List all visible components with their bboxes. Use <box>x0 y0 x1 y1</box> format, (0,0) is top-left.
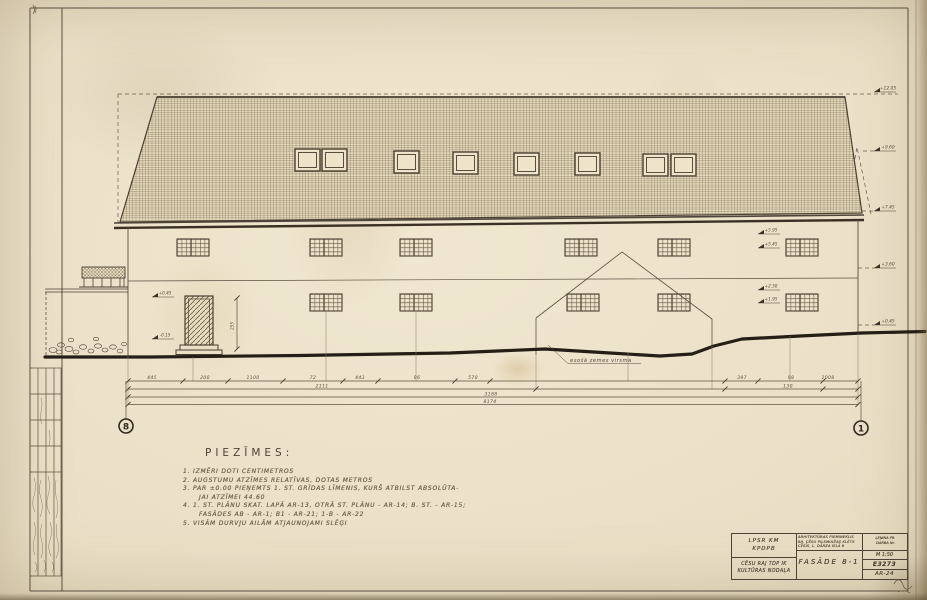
svg-text:397: 397 <box>737 375 747 381</box>
svg-text:+5.45: +5.45 <box>765 242 778 247</box>
level-flags-left-wall: +0.45 -0.15 <box>152 291 174 340</box>
svg-text:+0.45: +0.45 <box>881 319 895 325</box>
drawing-sheet: 255 <box>0 0 927 600</box>
svg-text:+2.50: +2.50 <box>765 284 778 289</box>
svg-text:+1.95: +1.95 <box>765 297 778 302</box>
org-cell-bottom: CĒSU RAJ TDP IK KULTŪRAS NODAĻA <box>732 561 796 575</box>
note-line: 3. PAR ±0.00 PIEŅEMTS 1. ST. GRĪDAS LĪME… <box>183 485 523 494</box>
roof <box>114 97 864 228</box>
svg-text:443: 443 <box>355 375 365 381</box>
svg-text:esošā zemes virsma: esošā zemes virsma <box>570 357 632 364</box>
svg-text:98: 98 <box>788 375 794 381</box>
svg-text:3188: 3188 <box>485 392 498 398</box>
note-line: 5. VISĀM DURVJU AILĀM ATJAUNOJAMI SLĒĢI <box>183 520 523 529</box>
org-cell-top: LPSR KM KPDPB <box>732 537 796 553</box>
door-dimension-value: 255 <box>230 322 235 330</box>
paper-edge-bottom <box>0 593 927 600</box>
entrance-door <box>176 296 222 355</box>
svg-text:-0.15: -0.15 <box>160 333 171 338</box>
notes-block: PIEZĪMES: 1. IZMĒRI DOTI CENTIMETROS 2. … <box>183 447 523 528</box>
project-line: CĒSĪS, L. DĀRZA IELĀ 6 <box>798 544 862 549</box>
note-line: 2. AUGSTUMU ATZĪMES RELATĪVAS, DOTAS MET… <box>183 477 523 486</box>
left-annex <box>45 267 128 356</box>
svg-text:2111: 2111 <box>316 384 329 390</box>
svg-text:96: 96 <box>414 375 420 381</box>
svg-text:72: 72 <box>310 375 316 381</box>
pencil-mark-top-left <box>33 5 36 14</box>
note-line: 4. 1. ST. PLĀNU SKAT. LAPĀ AR-13, OTRĀ S… <box>183 502 523 511</box>
svg-text:+0.45: +0.45 <box>159 291 172 296</box>
door-dimension: 255 <box>230 295 240 351</box>
floor-band-line <box>128 278 858 281</box>
note-line: 1. IZMĒRI DOTI CENTIMETROS <box>183 468 523 477</box>
archive-strip <box>30 368 61 576</box>
facade-wall <box>128 220 858 356</box>
level-flags-window-right: +5.95 +5.45 +2.50 +1.95 <box>758 228 780 304</box>
paper-edge-right <box>916 0 927 600</box>
org-name-line: CĒSU RAJ TDP IK <box>732 561 796 568</box>
svg-text:+5.95: +5.95 <box>765 228 778 233</box>
door-step <box>176 350 222 355</box>
project-cell: ARHITEKTŪRAS PIEMINEKLIS BIJ. CĒSU PILSM… <box>798 535 862 549</box>
svg-text:+7.45: +7.45 <box>881 205 895 211</box>
svg-text:570: 570 <box>468 375 478 381</box>
annex-railing <box>82 267 125 278</box>
ground-line <box>45 332 925 358</box>
dimension-values: 445 200 1100 72 443 96 570 397 98 1008 2… <box>147 375 834 405</box>
notes-title: PIEZĪMES: <box>205 447 523 459</box>
note-line: FASĀDES AB - AR-1; B1 - AR-21; 1-B - AR-… <box>199 511 523 520</box>
svg-text:445: 445 <box>147 375 157 381</box>
drawing-title: FASĀDE 8-1 <box>796 558 862 566</box>
svg-text:8: 8 <box>123 423 129 433</box>
projection-lines <box>128 311 858 405</box>
svg-text:1008: 1008 <box>822 375 835 381</box>
org-name-line: KULTŪRAS NODAĻA <box>732 568 796 575</box>
paper-corner-curl <box>857 545 927 600</box>
level-flags-right: +12.05 +9.60 +7.45 +3.60 +0.45 <box>874 86 896 326</box>
svg-text:130: 130 <box>783 384 793 390</box>
project-line: ARHITEKTŪRAS PIEMINEKLIS <box>798 535 862 540</box>
rubble-stones <box>49 337 127 354</box>
svg-text:+3.60: +3.60 <box>881 262 895 268</box>
svg-text:200: 200 <box>200 375 210 381</box>
org-name-line: LPSR KM <box>732 537 796 545</box>
svg-text:1: 1 <box>858 425 864 435</box>
svg-text:8174: 8174 <box>484 399 497 405</box>
windows-upper-row <box>177 239 818 256</box>
door-step <box>180 345 218 350</box>
svg-text:1100: 1100 <box>247 375 260 381</box>
svg-text:+9.60: +9.60 <box>881 145 895 151</box>
org-name-line: KPDPB <box>732 545 796 553</box>
svg-text:+12.05: +12.05 <box>880 86 896 92</box>
